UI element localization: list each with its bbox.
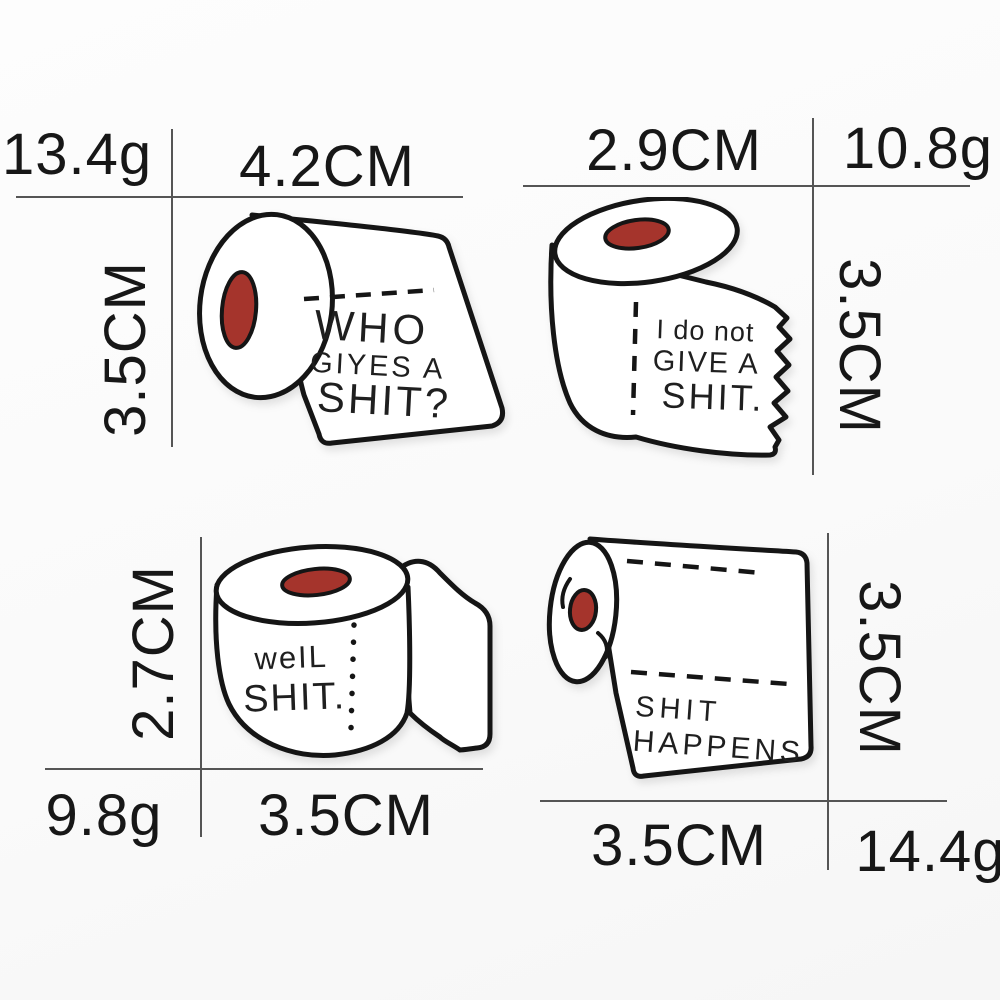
dim-line-bottomright-horizontal (540, 800, 947, 802)
pin-text-line: I do not (656, 314, 755, 347)
pin3-height-label: 2.7CM (125, 565, 183, 741)
pin-well-shit: weIL SHIT. (213, 541, 497, 763)
pin-text-line: SHIT. (661, 374, 765, 419)
toilet-roll-graphic: WHO GIYES A SHIT? (192, 203, 512, 485)
dim-line-bottomright-vertical (827, 533, 829, 870)
product-diagram: 13.4g 4.2CM 3.5CM 2.9CM 10.8g 3.5CM 2.7C… (0, 0, 1000, 1000)
pin1-width-label: 4.2CM (228, 138, 426, 196)
pin-text-line: weIL (253, 639, 329, 677)
pin1-height-label: 3.5CM (97, 261, 155, 437)
pin4-weight-label: 14.4g (843, 823, 1000, 881)
pin-text-line: SHIT (634, 691, 722, 729)
pin-text-line: SHIT. (242, 675, 346, 721)
toilet-roll-graphic: weIL SHIT. (213, 541, 497, 763)
pin3-weight-label: 9.8g (28, 787, 180, 845)
dim-line-bottomleft-horizontal (45, 768, 483, 770)
dim-line-topleft-vertical (171, 129, 173, 447)
toilet-roll-graphic: SHIT HAPPENS (546, 533, 818, 785)
pin4-width-label: 3.5CM (580, 817, 778, 875)
dim-line-bottomleft-vertical (200, 537, 202, 837)
pin2-width-label: 2.9CM (575, 122, 773, 180)
pin-text-line: WHO (313, 301, 430, 354)
dim-line-topright-vertical (812, 118, 814, 475)
pin2-height-label: 3.5CM (830, 258, 888, 434)
toilet-roll-graphic: I do not GIVE A SHIT. (548, 197, 800, 489)
pin2-weight-label: 10.8g (832, 120, 1000, 178)
pin-shit-happens: SHIT HAPPENS (546, 533, 818, 785)
pin3-width-label: 3.5CM (247, 787, 445, 845)
pin4-height-label: 3.5CM (850, 580, 908, 756)
pin-i-do-not-give-a-shit: I do not GIVE A SHIT. (548, 197, 800, 489)
dim-line-topright-horizontal (523, 185, 970, 187)
pin1-weight-label: 13.4g (2, 126, 152, 184)
pin-text-line: SHIT? (316, 373, 452, 427)
pin-who-gives-a-shit: WHO GIYES A SHIT? (192, 203, 512, 485)
